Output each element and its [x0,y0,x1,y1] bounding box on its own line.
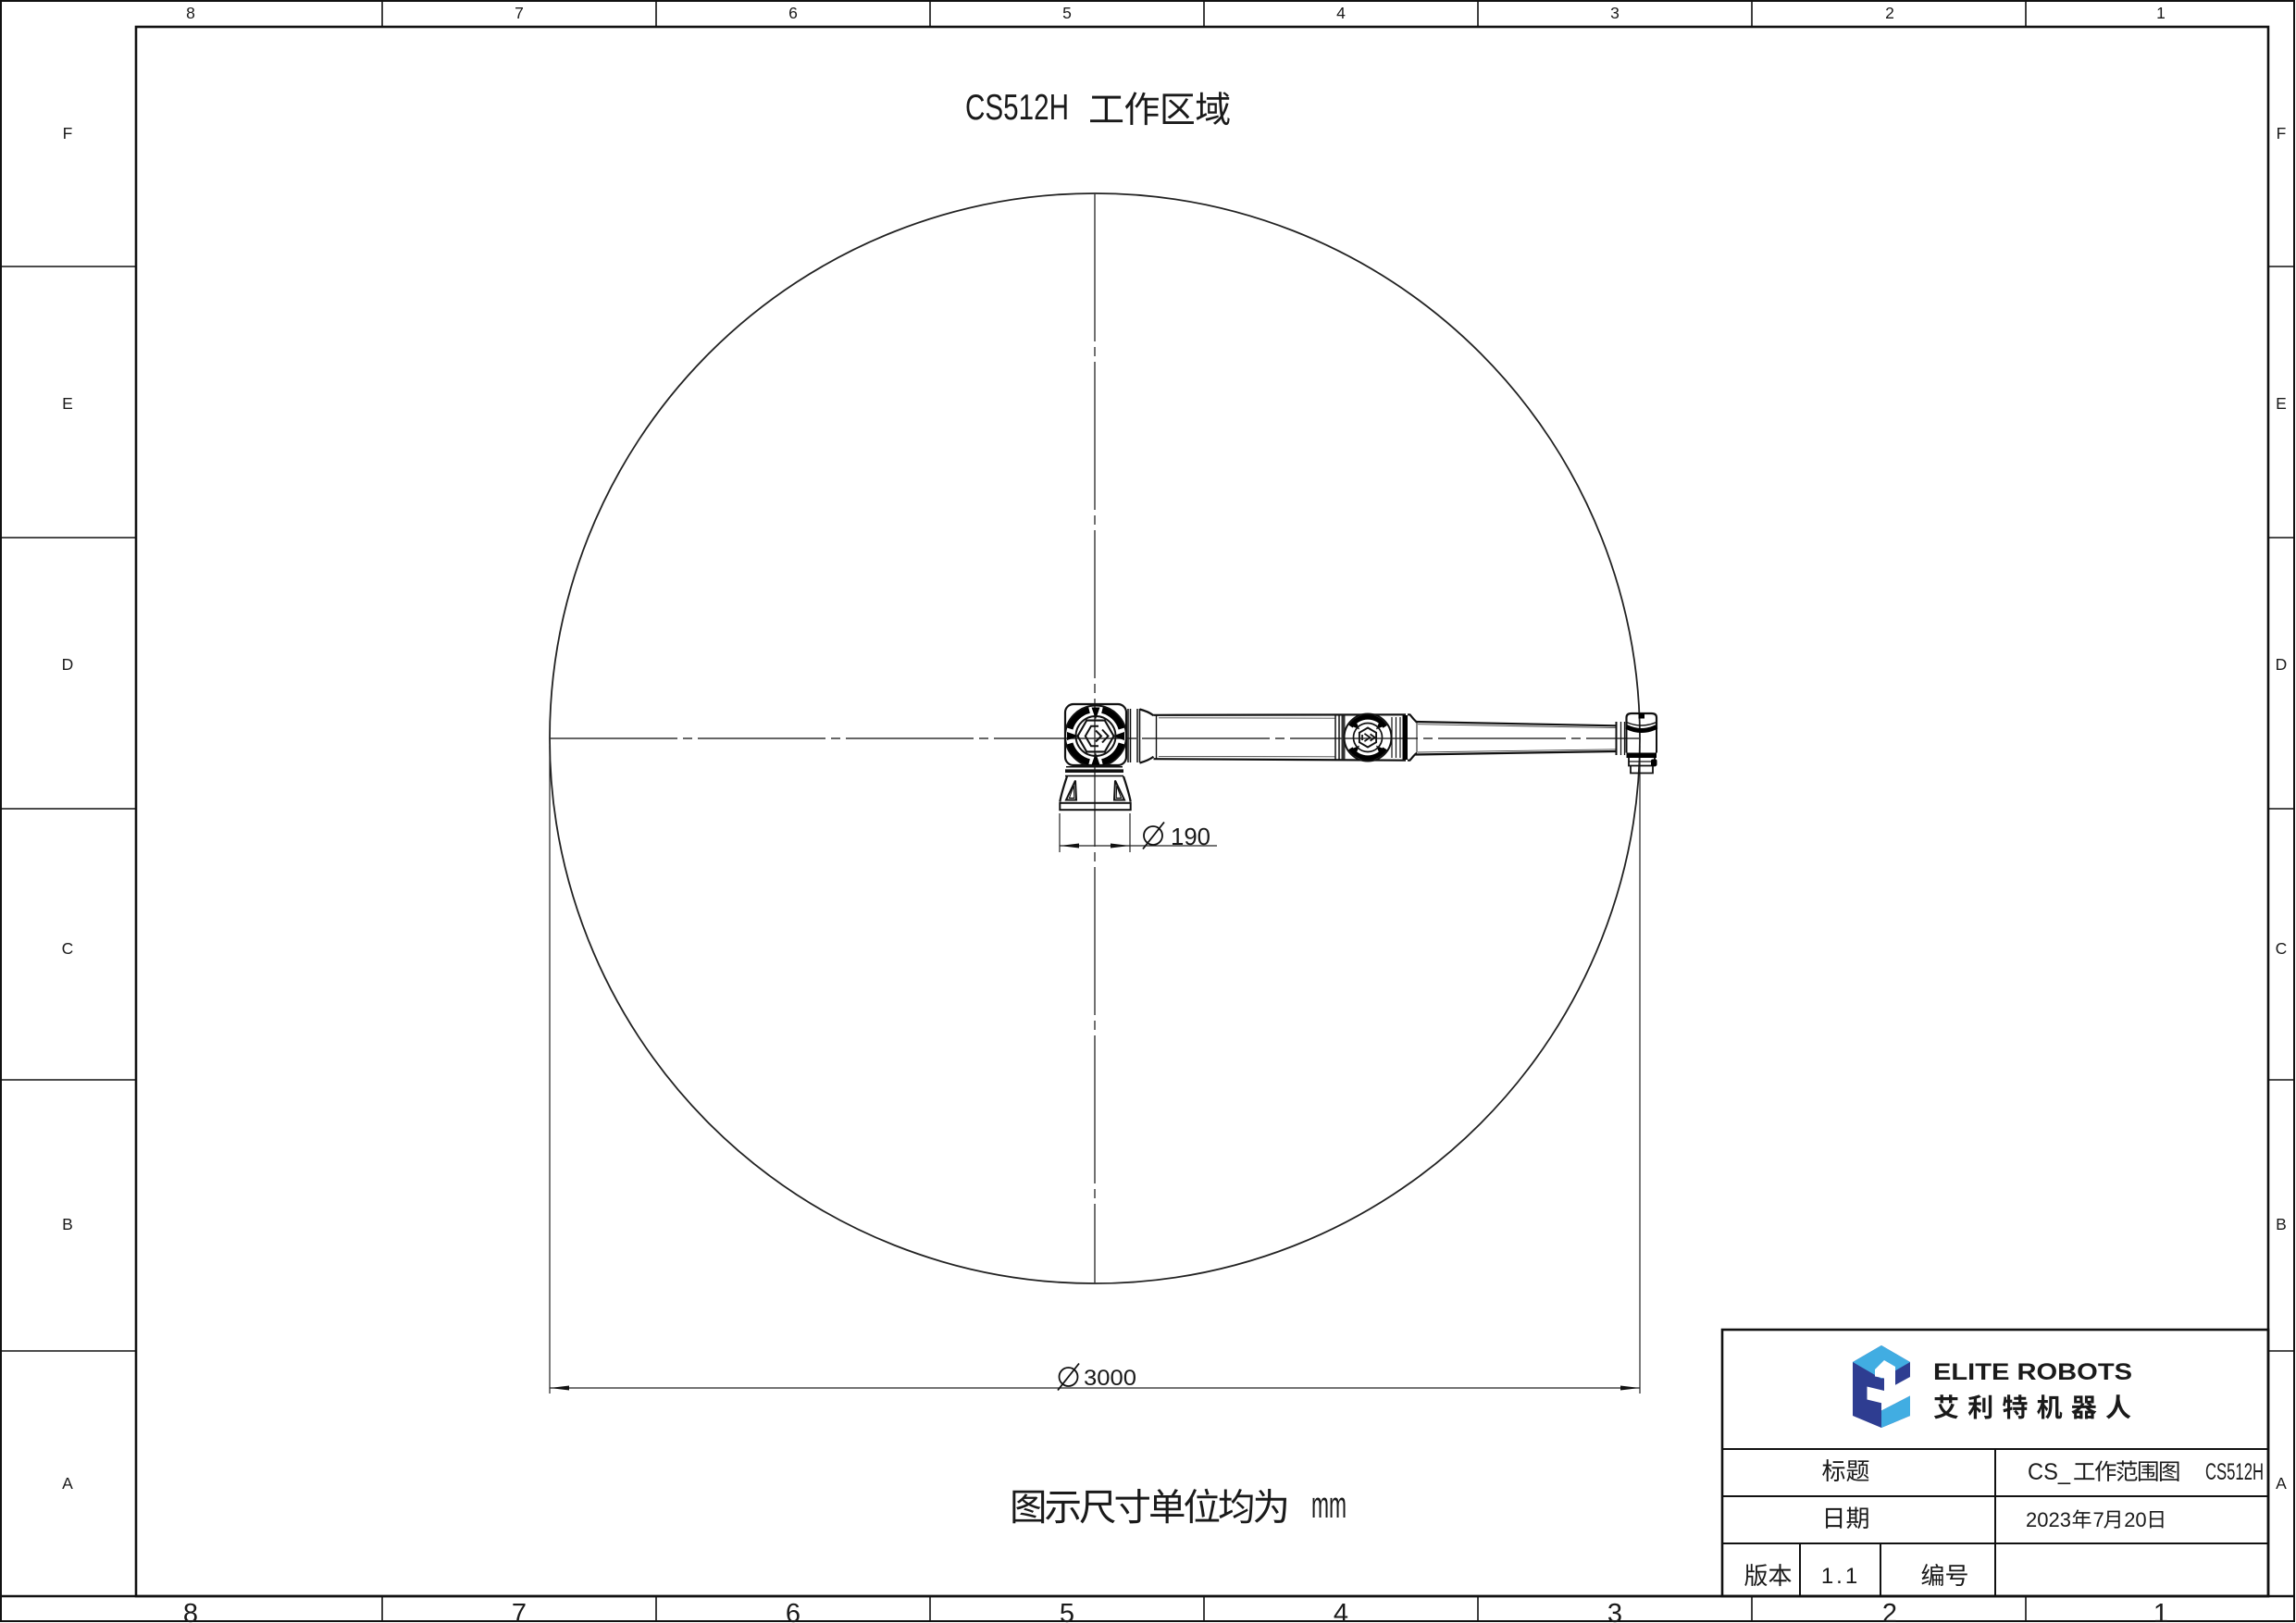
svg-text:C: C [62,939,74,958]
svg-text:3: 3 [1607,1599,1622,1623]
svg-text:8: 8 [183,1599,198,1623]
svg-text:D: D [62,655,74,674]
svg-text:7: 7 [512,1599,527,1623]
svg-text:6: 6 [786,1599,800,1623]
svg-text:3: 3 [1610,4,1620,22]
svg-text:4: 4 [1334,1599,1348,1623]
svg-text:C: C [2276,939,2288,958]
svg-text:F: F [2277,124,2287,142]
svg-text:2: 2 [1885,4,1894,22]
svg-text:A: A [2276,1474,2287,1493]
svg-text:2023: 2023 [2026,1508,2071,1531]
svg-text:1.1: 1.1 [1821,1564,1860,1589]
svg-text:CS_: CS_ [2028,1459,2071,1485]
svg-text:4: 4 [1336,4,1346,22]
svg-text:E: E [2276,394,2287,413]
svg-text:F: F [63,124,73,142]
svg-text:E: E [62,394,73,413]
svg-text:A: A [62,1474,73,1493]
svg-text:6: 6 [788,4,798,22]
svg-text:B: B [62,1215,73,1233]
svg-text:1: 1 [2156,4,2166,22]
svg-text:D: D [2276,655,2288,674]
svg-text:CS512H: CS512H [2205,1459,2264,1485]
svg-text:5: 5 [1060,1599,1074,1623]
svg-text:190: 190 [1171,823,1210,850]
svg-text:B: B [2276,1215,2287,1233]
svg-text:ELITE ROBOTS: ELITE ROBOTS [1933,1359,2132,1385]
svg-text:20: 20 [2124,1508,2146,1531]
svg-text:8: 8 [186,4,195,22]
svg-text:7: 7 [515,4,524,22]
svg-text:mm: mm [1311,1485,1347,1526]
svg-text:5: 5 [1062,4,1072,22]
svg-text:3000: 3000 [1084,1366,1136,1391]
svg-text:1: 1 [2153,1599,2168,1623]
svg-text:CS512H: CS512H [965,88,1069,128]
svg-text:2: 2 [1882,1599,1897,1623]
svg-text:7: 7 [2093,1508,2104,1531]
